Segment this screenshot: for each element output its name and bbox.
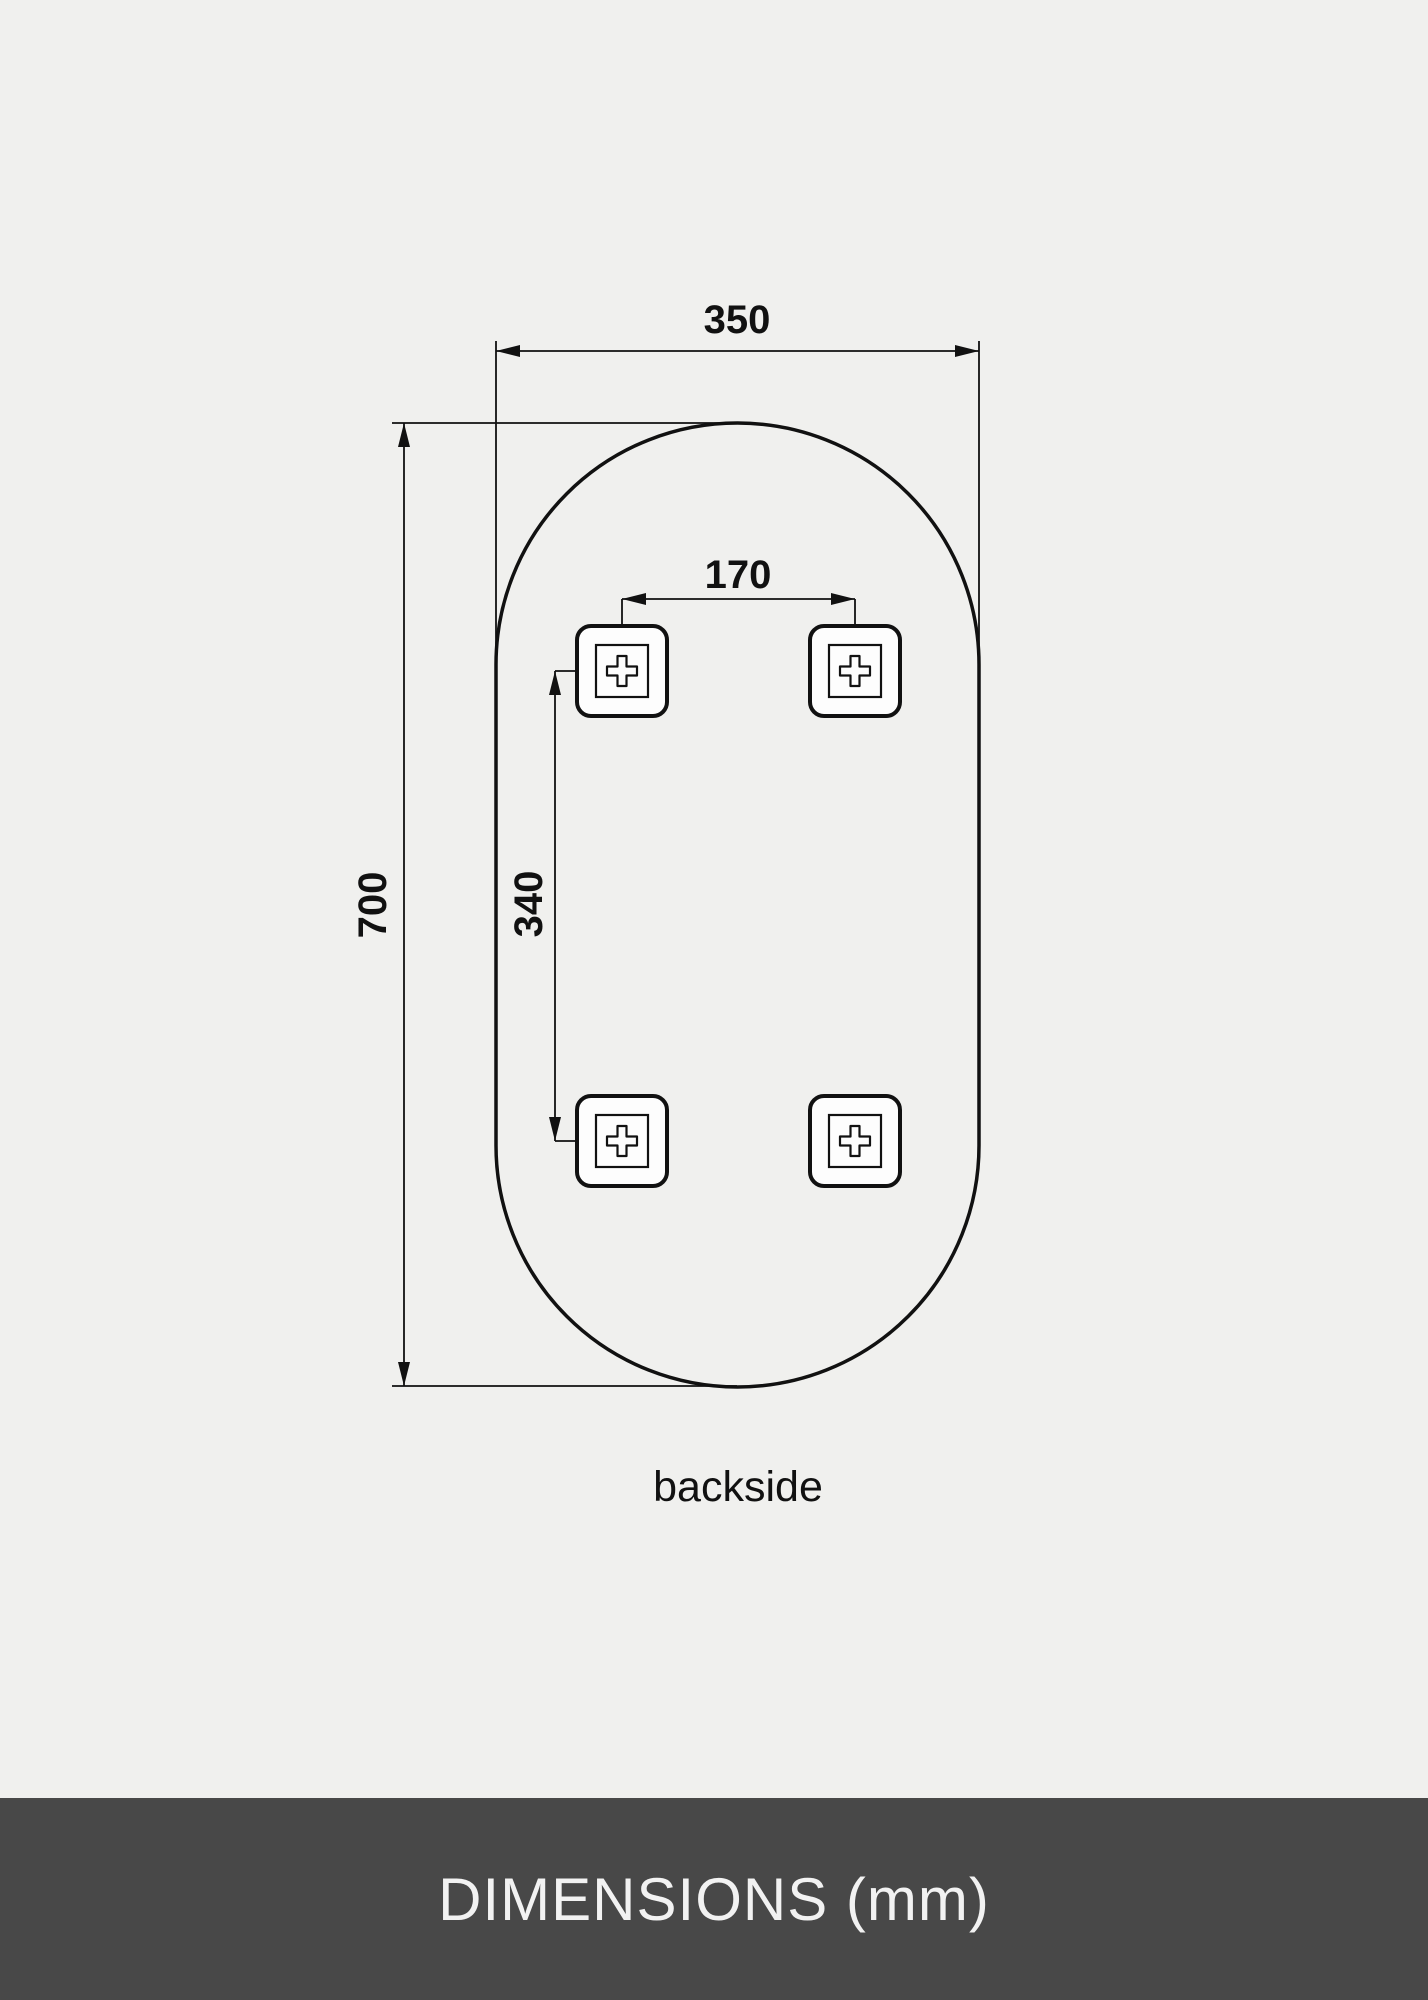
hole-spacing-h-arrow-left — [622, 593, 646, 605]
technical-drawing: 350 700 170 340 — [0, 0, 1428, 1798]
dimension-height-arrow-top — [398, 423, 410, 447]
dimension-hole-spacing-horizontal: 170 — [622, 553, 855, 626]
footer-bar: DIMENSIONS (mm) — [0, 1798, 1428, 2000]
mounting-bracket-top-right — [810, 626, 900, 716]
dimension-height-label: 700 — [351, 872, 395, 939]
hole-spacing-v-label: 340 — [507, 871, 551, 938]
page: { "colors": { "background": "#f0f0ee", "… — [0, 0, 1428, 2000]
hole-spacing-v-arrow-bottom — [549, 1117, 561, 1141]
hole-spacing-v-arrow-top — [549, 671, 561, 695]
dimension-width-arrow-left — [496, 345, 520, 357]
mounting-bracket-top-left — [577, 626, 667, 716]
dimension-hole-spacing-vertical: 340 — [507, 671, 577, 1141]
mounting-bracket-bottom-left — [577, 1096, 667, 1186]
dimension-height-arrow-bottom — [398, 1362, 410, 1386]
dimension-width: 350 — [496, 298, 979, 668]
dimension-width-label: 350 — [704, 298, 771, 342]
mounting-bracket-bottom-right — [810, 1096, 900, 1186]
drawing-caption: backside — [653, 1463, 823, 1511]
dimension-width-arrow-right — [955, 345, 979, 357]
hole-spacing-h-label: 170 — [705, 553, 772, 597]
footer-title: DIMENSIONS (mm) — [438, 1865, 990, 1934]
hole-spacing-h-arrow-right — [831, 593, 855, 605]
